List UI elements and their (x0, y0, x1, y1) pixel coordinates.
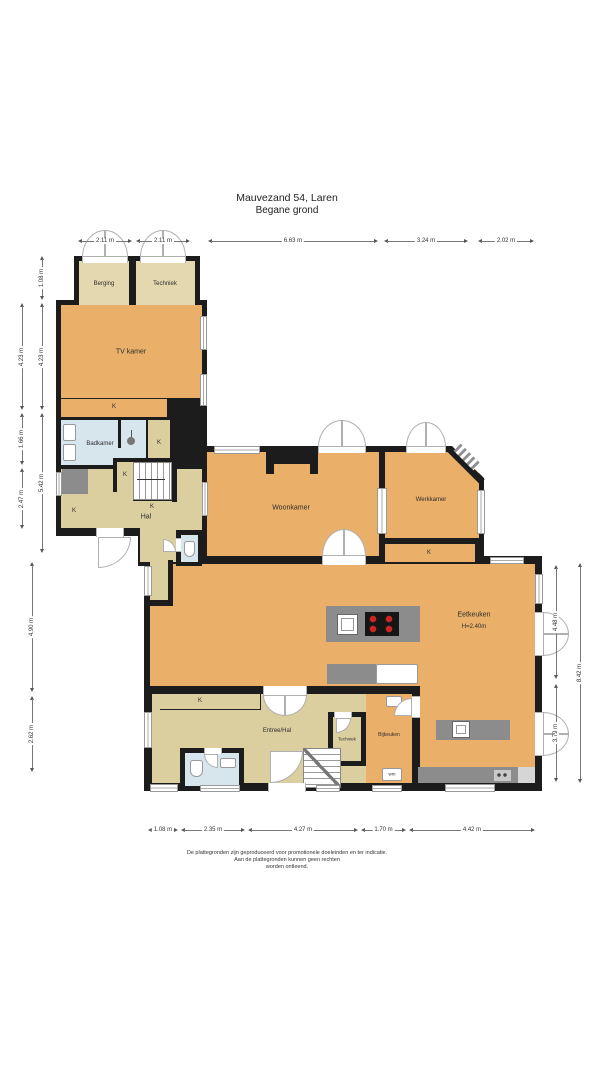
dimension-label: 4.23 m (19, 345, 25, 367)
fireplace-notch (274, 464, 310, 474)
dimension: 2.35 m (181, 826, 245, 834)
dimension-label: 3.24 m (415, 238, 437, 244)
door-opening (406, 446, 446, 453)
dimension: 4.23 m (18, 303, 26, 410)
counter (327, 664, 376, 684)
door-swing (426, 422, 446, 447)
label-closet: K (427, 550, 431, 556)
disclaimer-line3: worden ontleend. (266, 864, 308, 870)
window (144, 712, 152, 748)
label-closet: K (198, 698, 202, 704)
window (445, 784, 495, 792)
dimension: 3.79 m (552, 684, 560, 782)
label-closet: K (72, 508, 76, 514)
sink (337, 614, 358, 635)
opening (202, 482, 208, 516)
dimension-label: 2.62 m (29, 723, 35, 745)
wall (150, 600, 173, 606)
door-opening (535, 612, 543, 656)
stairs-arrow (137, 479, 165, 480)
dimension: 2.11 m (136, 237, 190, 245)
dimension-label: 5.42 m (39, 472, 45, 494)
closet-line (160, 709, 260, 710)
dimension-label: 3.79 m (553, 722, 559, 744)
label-closet: K (112, 404, 116, 410)
window (535, 574, 543, 604)
cabinet-block (62, 469, 88, 494)
plan-title-address: Mauvezand 54, Laren (236, 192, 338, 204)
disclaimer-line1: De plattegronden zijn geproduceerd voor … (187, 850, 387, 856)
closet-line (133, 500, 172, 501)
label-berging: Berging (94, 281, 115, 287)
window (214, 446, 260, 454)
label-washer: wm (389, 772, 396, 777)
washbasin (63, 424, 76, 441)
dimension: 2.11 m (78, 237, 132, 245)
dimension-label: 2.11 m (152, 238, 174, 244)
door-opening (412, 696, 420, 718)
kitchen-island-2 (436, 720, 510, 740)
window (200, 785, 240, 792)
door-opening (535, 712, 543, 756)
door-opening (263, 686, 307, 695)
window (56, 472, 62, 496)
cooktop (365, 612, 399, 636)
wall (172, 458, 177, 502)
label-badkamer: Badkamer (86, 441, 113, 447)
shower-head-icon (127, 437, 135, 445)
dimension-label: 2.35 m (202, 827, 224, 833)
dimension: 4.23 m (38, 303, 46, 410)
toilet (184, 541, 195, 557)
dimension: 5.42 m (38, 413, 46, 553)
door-opening (82, 256, 128, 263)
label-techniek-top: Techniek (153, 281, 177, 287)
dimension-label: 2.47 m (19, 487, 25, 509)
dimension: 1.70 m (361, 826, 406, 834)
dimension: 1.08 m (38, 256, 46, 300)
dimension-label: 4.23 m (39, 345, 45, 367)
label-hal: Hal (141, 514, 152, 521)
label-bijkeuken: Bijkeuken (378, 732, 400, 738)
label-closet: K (150, 504, 154, 510)
window (200, 374, 207, 406)
label-closet: K (157, 440, 161, 446)
label-woonkamer: Woonkamer (272, 505, 310, 512)
dimension-label: 8.42 m (577, 662, 583, 684)
label-werkkamer: Werkkamer (416, 497, 447, 503)
door-swing (318, 420, 342, 447)
dimension-label: 6.63 m (282, 238, 304, 244)
dimension: 8.42 m (576, 563, 584, 783)
dimension-label: 1.08 m (152, 827, 174, 833)
toilet (190, 760, 203, 777)
window (477, 490, 485, 534)
disclaimer-line2: Aan de plattegronden kunnen geen rechten (234, 857, 340, 863)
dimension: 2.47 m (18, 468, 26, 529)
washbasin (63, 444, 76, 461)
stairs-diagonal (303, 748, 341, 788)
floorplan-canvas: Mauvezand 54, Laren Begane grond (0, 0, 600, 1066)
stairs (133, 462, 172, 500)
label-eetkeuken: Eetkeuken (457, 612, 490, 619)
washbasin (220, 758, 236, 768)
dimension-label: 1.70 m (372, 827, 394, 833)
dimension: 1.08 m (148, 826, 178, 834)
door-opening (318, 446, 366, 453)
dimension-label: 2.11 m (94, 238, 116, 244)
dimension: 4.27 m (248, 826, 358, 834)
dimension-label: 4.48 m (553, 611, 559, 633)
label-tv-kamer: TV kamer (116, 349, 146, 356)
dimension: 4.48 m (552, 565, 560, 679)
label-closet: K (123, 472, 127, 478)
label-eetkeuken-height: H=2.40m (462, 624, 487, 630)
door-opening (176, 538, 181, 552)
dimension-label: 4.27 m (292, 827, 314, 833)
dishwasher (518, 767, 535, 783)
closet-line (260, 694, 261, 710)
dimension: 1.66 m (18, 413, 26, 465)
dimension: 2.62 m (28, 696, 36, 772)
window (316, 785, 340, 792)
door-opening (140, 256, 186, 263)
sink (452, 721, 470, 738)
oven-icon (494, 770, 511, 781)
dimension-label: 4.42 m (461, 827, 483, 833)
wall (168, 560, 173, 604)
window (372, 785, 402, 792)
dimension-label: 1.08 m (39, 267, 45, 289)
door-opening (322, 556, 366, 565)
dimension-label: 4.90 m (29, 616, 35, 638)
window (200, 316, 207, 350)
door-swing (98, 537, 131, 568)
dimension: 6.63 m (208, 237, 378, 245)
label-techniek-bottom: Techniek (338, 737, 356, 742)
dimension: 3.24 m (384, 237, 468, 245)
appliance (376, 664, 418, 684)
dimension: 4.90 m (28, 562, 36, 692)
label-entree: Entree/Hal (263, 728, 291, 734)
plan-title-floor: Begane grond (256, 205, 319, 216)
dimension: 4.42 m (409, 826, 535, 834)
window (150, 784, 178, 792)
window (144, 566, 152, 596)
window (490, 557, 524, 564)
dimension: 2.02 m (478, 237, 534, 245)
dimension-label: 1.66 m (19, 428, 25, 450)
corridor-strip (150, 562, 168, 602)
front-door-opening (268, 783, 306, 792)
door-opening (96, 528, 124, 537)
wall-line (61, 398, 167, 399)
door-swing (406, 422, 426, 447)
door-swing (342, 420, 366, 447)
dimension-label: 2.02 m (495, 238, 517, 244)
wall (118, 420, 121, 448)
opening (377, 488, 387, 534)
